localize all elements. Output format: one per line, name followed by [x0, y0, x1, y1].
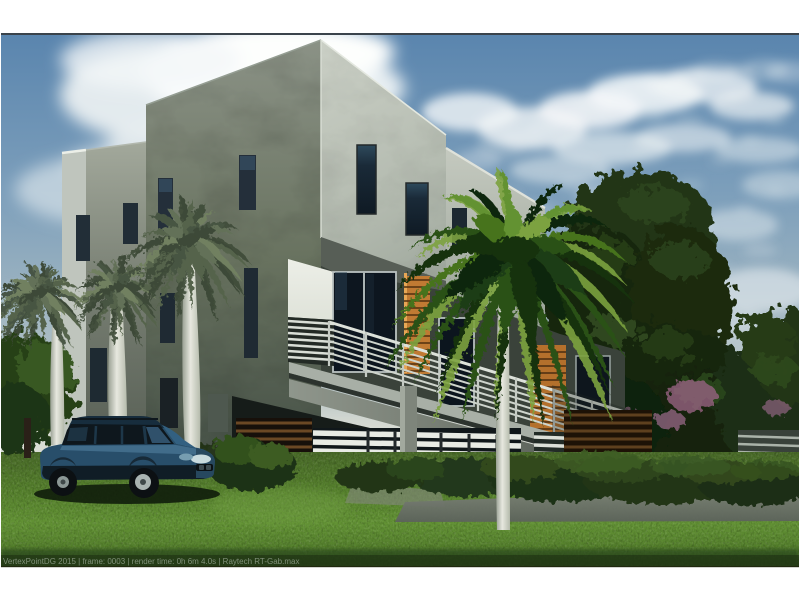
- svg-text:VertexPointDG 2015 | frame: 00: VertexPointDG 2015 | frame: 0003 | rende…: [3, 557, 299, 566]
